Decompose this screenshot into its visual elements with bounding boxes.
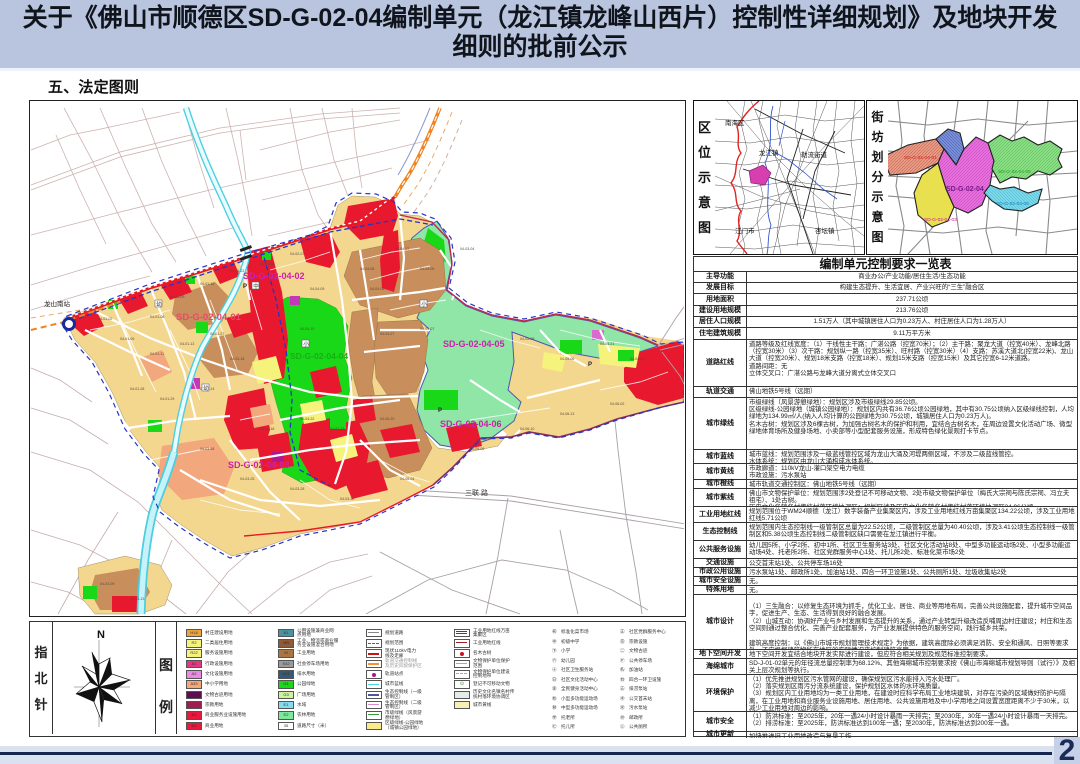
svg-text:SD-G-02-04-03: SD-G-02-04-03 bbox=[924, 217, 957, 223]
svg-text:04-01-18: 04-01-18 bbox=[200, 282, 214, 286]
svg-text:04-04-10: 04-04-10 bbox=[300, 327, 314, 331]
svg-text:龙山南站: 龙山南站 bbox=[44, 299, 71, 308]
svg-text:SD-G-02-04-03: SD-G-02-04-03 bbox=[228, 460, 290, 470]
svg-text:04-03-18: 04-03-18 bbox=[200, 447, 214, 451]
svg-text:04-01-05: 04-01-05 bbox=[120, 337, 134, 341]
svg-text:04-06-10: 04-06-10 bbox=[520, 427, 534, 431]
svg-text:04-06-02: 04-06-02 bbox=[610, 402, 624, 406]
svg-text:04-05-08: 04-05-08 bbox=[520, 337, 534, 341]
svg-text:04-02-07: 04-02-07 bbox=[290, 252, 304, 256]
svg-text:04-01-13: 04-01-13 bbox=[180, 342, 194, 346]
svg-text:04-01-27: 04-01-27 bbox=[210, 332, 224, 336]
svg-text:04-01-29: 04-01-29 bbox=[160, 397, 174, 401]
svg-text:04-06-04: 04-06-04 bbox=[400, 477, 414, 481]
svg-text:SD-G-02-04-04: SD-G-02-04-04 bbox=[290, 351, 348, 361]
svg-text:P: P bbox=[588, 362, 592, 368]
svg-text:04-05-20: 04-05-20 bbox=[380, 417, 394, 421]
svg-text:小: 小 bbox=[303, 340, 309, 348]
svg-text:幼: 幼 bbox=[156, 300, 162, 308]
svg-text:04-06-06: 04-06-06 bbox=[470, 447, 484, 451]
svg-text:04-04-05: 04-04-05 bbox=[420, 267, 434, 271]
svg-text:04-01-28: 04-01-28 bbox=[130, 387, 144, 391]
svg-text:SD-G-02-04-01: SD-G-02-04-01 bbox=[904, 155, 937, 161]
svg-text:04-01-08: 04-01-08 bbox=[150, 315, 164, 319]
svg-text:04-01-22: 04-01-22 bbox=[230, 269, 244, 273]
svg-text:04-02-06: 04-02-06 bbox=[260, 262, 274, 266]
svg-text:SD-G-02-04-01: SD-G-02-04-01 bbox=[176, 312, 242, 323]
svg-text:SD-G-02-04-06: SD-G-02-04-06 bbox=[996, 201, 1029, 207]
svg-text:04-04-08: 04-04-08 bbox=[360, 267, 374, 271]
svg-text:04-04-18: 04-04-18 bbox=[260, 427, 274, 431]
svg-text:N: N bbox=[97, 629, 105, 641]
svg-text:江门市: 江门市 bbox=[735, 226, 755, 235]
svg-text:04-05-06: 04-05-06 bbox=[560, 357, 574, 361]
svg-text:04-06-13: 04-06-13 bbox=[560, 412, 574, 416]
svg-text:SD-G-02-04-06: SD-G-02-04-06 bbox=[440, 419, 502, 429]
svg-text:04-03-04: 04-03-04 bbox=[460, 247, 474, 251]
svg-text:04-03-07: 04-03-07 bbox=[420, 327, 434, 331]
svg-text:04-03-30: 04-03-30 bbox=[340, 497, 354, 501]
svg-text:三联 路: 三联 路 bbox=[465, 488, 488, 497]
svg-text:P: P bbox=[438, 408, 442, 414]
svg-text:04-03-16: 04-03-16 bbox=[230, 357, 244, 361]
svg-text:小: 小 bbox=[421, 300, 427, 308]
svg-text:幼: 幼 bbox=[203, 384, 209, 392]
svg-text:04-04-21: 04-04-21 bbox=[600, 342, 614, 346]
svg-text:04-01-11: 04-01-11 bbox=[150, 352, 164, 356]
svg-text:龙江镇: 龙江镇 bbox=[759, 148, 779, 157]
svg-text:04-04-06: 04-04-06 bbox=[370, 287, 384, 291]
svg-text:04-04-07: 04-04-07 bbox=[395, 247, 409, 251]
svg-text:04-03-23: 04-03-23 bbox=[330, 427, 344, 431]
svg-text:04-01-09: 04-01-09 bbox=[170, 295, 184, 299]
svg-text:杏坛镇: 杏坛镇 bbox=[815, 226, 835, 235]
svg-text:SD-G-02-04-02: SD-G-02-04-02 bbox=[243, 271, 305, 281]
svg-text:04-04-22: 04-04-22 bbox=[300, 417, 314, 421]
svg-text:04-03-09: 04-03-09 bbox=[100, 582, 114, 586]
svg-text:04-03-25: 04-03-25 bbox=[240, 477, 254, 481]
svg-text:中: 中 bbox=[253, 282, 259, 290]
svg-text:04-04-09: 04-04-09 bbox=[310, 287, 324, 291]
svg-text:04-01-02: 04-01-02 bbox=[98, 317, 112, 321]
svg-text:04-04-30: 04-04-30 bbox=[630, 357, 644, 361]
svg-text:P: P bbox=[243, 284, 247, 290]
svg-text:南海区: 南海区 bbox=[725, 118, 745, 127]
svg-text:04-03-13: 04-03-13 bbox=[130, 597, 144, 601]
svg-text:04-04-27: 04-04-27 bbox=[380, 332, 394, 336]
svg-text:SD-G-02-04: SD-G-02-04 bbox=[946, 186, 984, 193]
svg-text:勒流街道: 勒流街道 bbox=[801, 150, 828, 159]
svg-text:04-03-28: 04-03-28 bbox=[290, 487, 304, 491]
svg-text:SD-G-02-04-05: SD-G-02-04-05 bbox=[443, 339, 505, 349]
svg-text:SD-G-02-04-05: SD-G-02-04-05 bbox=[998, 169, 1031, 175]
